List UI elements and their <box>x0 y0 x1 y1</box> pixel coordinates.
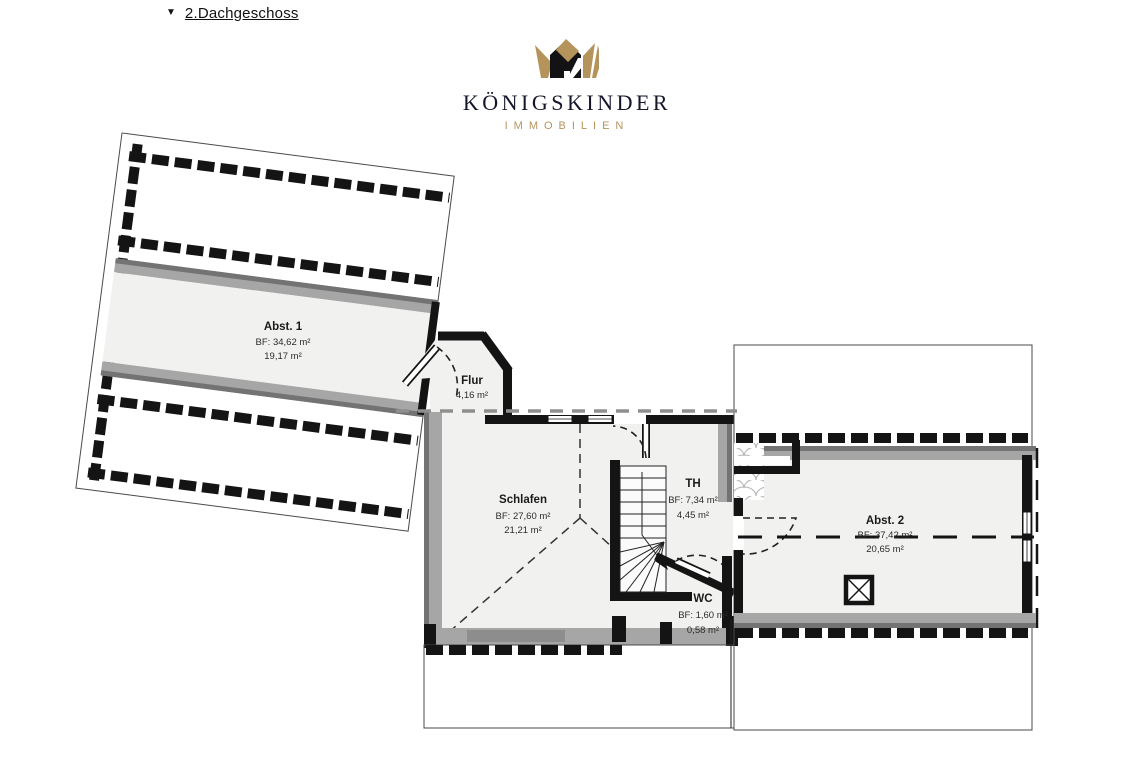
schlafen-bf: BF: 27,60 m² <box>496 511 551 522</box>
schlafen-area: 21,21 m² <box>504 525 542 536</box>
wc-area: 0,58 m² <box>687 625 719 636</box>
roof-hatch-bottom-center <box>424 645 734 728</box>
wc-bf: BF: 1,60 m² <box>678 610 728 621</box>
abst2-bf: BF: 37,42 m² <box>858 530 913 541</box>
th-name: TH <box>685 478 700 490</box>
window <box>588 416 612 423</box>
flur-name: Flur <box>461 375 483 387</box>
abst1-name: Abst. 1 <box>264 321 303 333</box>
abst1-area: 19,17 m² <box>264 351 302 362</box>
abst2-area: 20,65 m² <box>866 544 904 555</box>
abst1-bf: BF: 34,62 m² <box>256 337 311 348</box>
window <box>548 416 572 423</box>
window <box>1023 512 1031 534</box>
th-bf: BF: 7,34 m² <box>668 495 718 506</box>
wc-name: WC <box>693 593 712 605</box>
abst2-name: Abst. 2 <box>866 515 904 527</box>
th-area: 4,45 m² <box>677 510 709 521</box>
chimney-symbol <box>846 577 872 603</box>
floor-plan: Abst. 1 BF: 34,62 m² 19,17 m² Flur 4,16 … <box>0 0 1134 777</box>
flur-area: 4,16 m² <box>456 390 488 401</box>
schlafen-name: Schlafen <box>499 494 547 506</box>
window <box>1023 540 1031 562</box>
